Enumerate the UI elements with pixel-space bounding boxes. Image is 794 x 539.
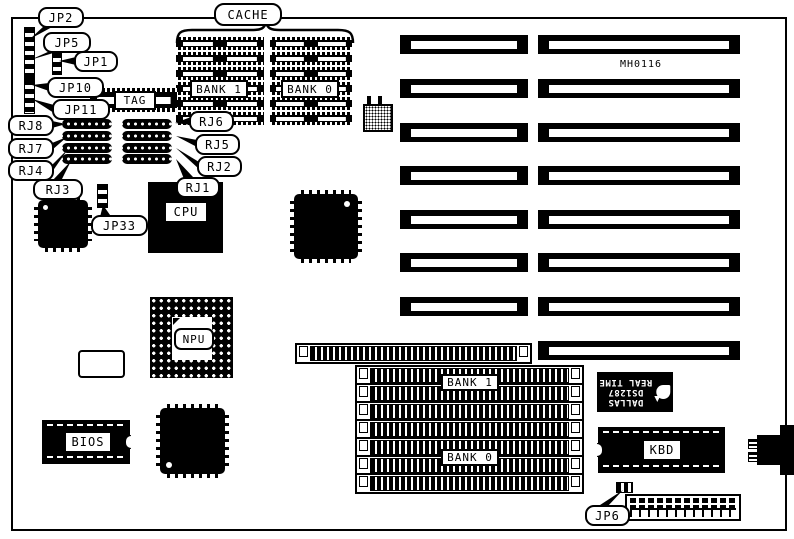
board-id-text: MH0116 [620, 59, 662, 70]
simm-socket [295, 343, 532, 364]
resistor-pack [122, 131, 172, 141]
qfp-pins-left [290, 201, 294, 252]
qfp-pins-left [34, 207, 38, 241]
rtc-text: DALLAS DS1287 REAL TIME [599, 377, 652, 407]
rtc-part: DS1287 [608, 387, 644, 397]
empty-socket [78, 350, 125, 378]
callout-jp6-label: JP6 [595, 509, 620, 523]
resistor-pack [62, 119, 112, 129]
tag-text: TAG [124, 94, 147, 107]
simm-bank1-label: BANK 1 [441, 374, 499, 391]
callout-jp11: JP11 [52, 99, 110, 120]
kbd-text: KBD [650, 443, 675, 457]
crystal-oscillator [363, 104, 393, 132]
callout-rj3-label: RJ3 [46, 183, 71, 197]
callout-jp6: JP6 [585, 505, 630, 526]
npu-socket: NPU [150, 297, 233, 378]
simm-socket [355, 473, 584, 494]
callout-jp1-label: JP1 [84, 55, 109, 69]
cpu-label: CPU [166, 203, 206, 221]
rtc-content: DALLAS DS1287 REAL TIME [599, 377, 670, 407]
keyboard-connector [780, 425, 794, 475]
qfp-pin1-dot [344, 201, 350, 207]
jumper-block-jp33 [97, 184, 108, 208]
motherboard-diagram: JP2 JP5 JP1 JP10 JP11 RJ8 RJ7 RJ4 RJ3 RJ… [0, 0, 794, 539]
callout-rj3: RJ3 [33, 179, 83, 200]
simm-bank1-text: BANK 1 [447, 376, 493, 389]
cache-bank0-text: BANK 0 [287, 83, 333, 96]
isa-slot-segment [538, 210, 740, 229]
qfp-pins-right [358, 201, 362, 252]
qfp-pins-bottom [301, 259, 351, 263]
simm-pins [310, 346, 517, 361]
rtc-chip: DALLAS DS1287 REAL TIME [597, 372, 673, 412]
callout-rj4-label: RJ4 [19, 164, 44, 178]
qfp-pins-bottom [167, 474, 218, 478]
power-connector-tabs [630, 498, 736, 503]
jumper-block-jp1 [52, 52, 62, 75]
isa-slot-segment [400, 210, 528, 229]
npu-text: NPU [183, 333, 206, 346]
callout-jp10: JP10 [47, 77, 104, 98]
keyboard-connector-pin [748, 452, 758, 462]
isa-slot-segment [538, 341, 740, 360]
cache-bank1-text: BANK 1 [196, 83, 242, 96]
keyboard-connector-pin [748, 439, 758, 449]
npu-label: NPU [174, 328, 214, 350]
bios-label: BIOS [66, 433, 110, 451]
callout-rj1-label: RJ1 [186, 181, 211, 195]
bios-notch [125, 435, 131, 449]
cache-chip [270, 37, 352, 50]
isa-slot-segment [538, 166, 740, 185]
qfp-chip-bottom [160, 408, 225, 474]
callout-jp1: JP1 [74, 51, 118, 72]
isa-slot-segment [400, 297, 528, 316]
qfp-pin1-dot [43, 205, 48, 210]
qfp-pins-top [301, 190, 351, 194]
callout-rj4: RJ4 [8, 160, 54, 181]
cache-chip [176, 52, 264, 65]
qfp-pins-left [156, 415, 160, 467]
keyboard-connector-body [757, 435, 781, 465]
callout-rj1: RJ1 [176, 177, 220, 198]
rtc-function: REAL TIME [599, 377, 652, 387]
kbd-label: KBD [644, 441, 680, 459]
cache-chip [176, 37, 264, 50]
jumper-block-jp6 [616, 482, 633, 493]
isa-slot-segment [400, 166, 528, 185]
callout-jp10-label: JP10 [59, 81, 92, 95]
cache-bank0-label: BANK 0 [281, 80, 339, 98]
cpu-text: CPU [174, 205, 199, 219]
resistor-pack [62, 143, 112, 153]
isa-slot-segment [538, 79, 740, 98]
callout-rj5-label: RJ5 [205, 138, 230, 152]
qfp-pins-right [225, 415, 229, 467]
jumper-block-jp2-jp5 [24, 27, 35, 79]
isa-slot-segment [400, 253, 528, 272]
cache-chip [270, 97, 352, 110]
resistor-pack [62, 131, 112, 141]
callout-rj6: RJ6 [189, 111, 234, 132]
cache-chip [270, 112, 352, 125]
callout-jp33: JP33 [91, 215, 148, 236]
qfp-chip-mid [294, 194, 358, 259]
callout-rj8: RJ8 [8, 115, 54, 136]
kbd-notch [597, 443, 603, 457]
simm-bank0-label: BANK 0 [441, 449, 499, 466]
isa-slot-segment [538, 297, 740, 316]
cache-bank1-label: BANK 1 [190, 80, 248, 98]
cache-chip [270, 52, 352, 65]
simm-pins [370, 404, 569, 419]
isa-slot-segment [538, 123, 740, 142]
npu-center: NPU [172, 317, 212, 360]
callout-jp2: JP2 [38, 7, 84, 28]
callout-jp11-label: JP11 [65, 103, 98, 117]
resistor-pack [122, 143, 172, 153]
callout-rj7: RJ7 [8, 138, 54, 159]
resistor-pack [62, 154, 112, 164]
isa-slot-segment [400, 79, 528, 98]
simm-pins [370, 422, 569, 437]
qfp-pins-top [167, 404, 218, 408]
simm-pins [370, 476, 569, 491]
callout-rj5: RJ5 [195, 134, 240, 155]
bios-chip: BIOS [42, 420, 130, 464]
cache-callout: CACHE [214, 3, 282, 26]
isa-slot-segment [400, 123, 528, 142]
power-connector [625, 494, 741, 521]
resistor-pack [122, 119, 172, 129]
cache-chip [176, 97, 264, 110]
cache-chip [270, 67, 352, 80]
callout-jp33-label: JP33 [103, 219, 136, 233]
isa-slot-segment [538, 35, 740, 54]
resistor-pack [122, 154, 172, 164]
power-connector-pins [630, 508, 736, 517]
simm-bank0-text: BANK 0 [447, 451, 493, 464]
board-id: MH0116 [608, 59, 674, 70]
qfp-pins-bottom [45, 248, 81, 252]
rtc-brand: DALLAS [608, 397, 644, 407]
callout-rj8-label: RJ8 [19, 119, 44, 133]
isa-slot-segment [538, 253, 740, 272]
qfp-chip-left [38, 200, 88, 248]
jumper-block-jp10-jp11 [24, 79, 35, 114]
callout-rj6-label: RJ6 [199, 115, 224, 129]
cache-label: CACHE [227, 8, 268, 22]
callout-rj7-label: RJ7 [19, 142, 44, 156]
kbd-chip: KBD [598, 427, 725, 473]
callout-jp2-label: JP2 [49, 11, 74, 25]
callout-jp5-label: JP5 [55, 36, 80, 50]
callout-jp5: JP5 [43, 32, 91, 53]
qfp-pin1-dot [166, 462, 172, 468]
dallas-rooster-logo [657, 385, 671, 399]
bios-text: BIOS [72, 435, 105, 449]
tag-label: TAG [114, 91, 156, 110]
isa-slot-segment [400, 35, 528, 54]
cache-chip [176, 67, 264, 80]
callout-rj2-label: RJ2 [207, 160, 232, 174]
callout-rj2: RJ2 [197, 156, 242, 177]
npu-pin1-marker [173, 318, 180, 325]
